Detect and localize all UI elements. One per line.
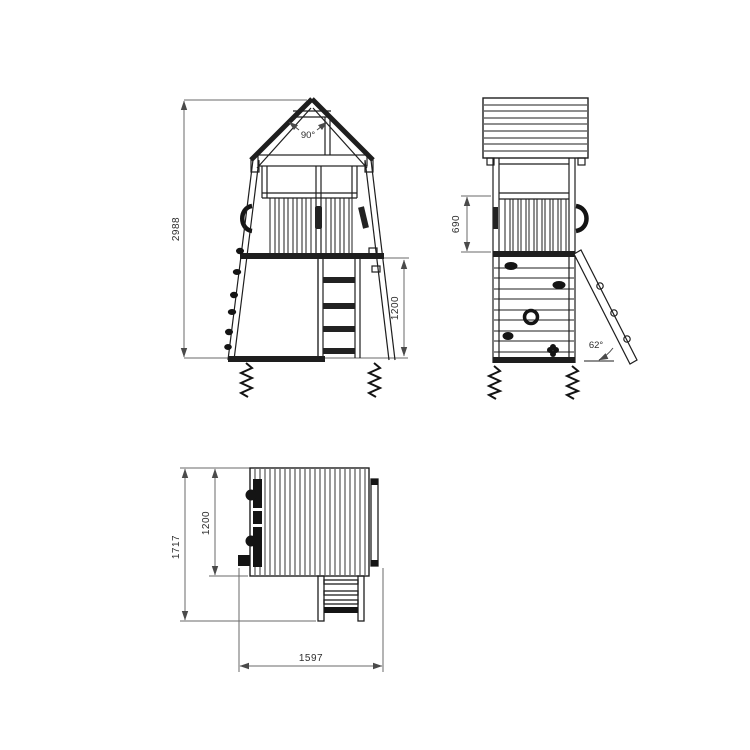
railing-front	[262, 193, 357, 253]
railing-side	[493, 193, 587, 251]
side-view	[461, 98, 637, 399]
ladder-side	[574, 250, 637, 364]
plan-overall-depth-label: 1717	[171, 535, 182, 559]
plan-overall-width-label: 1597	[299, 653, 323, 664]
dimension-labels: 2988 90° 1200 690 62° 1717 1200 1597	[171, 130, 603, 664]
ground-anchors-front	[241, 363, 380, 397]
right-grip	[361, 207, 366, 228]
roof-beam	[251, 155, 373, 172]
front-view	[184, 99, 409, 397]
climbing-holds-front	[224, 248, 244, 350]
platform-floor	[240, 253, 384, 259]
platform-floor-side	[493, 251, 575, 257]
technical-drawing-canvas: 2988 90° 1200 690 62° 1717 1200 1597	[0, 0, 750, 750]
side-dimensions	[461, 196, 491, 252]
tower-posts	[262, 166, 357, 253]
tower-side-frame	[493, 158, 575, 363]
ground-anchors-side	[489, 366, 578, 399]
legs	[228, 160, 395, 360]
side-ladder-angle-label: 62°	[589, 340, 604, 351]
left-grip-side	[493, 207, 498, 229]
plan-tower-depth-label: 1200	[201, 511, 212, 535]
ladder-front	[318, 259, 360, 358]
flower-hold	[547, 344, 559, 357]
drawing-svg: 2988 90° 1200 690 62° 1717 1200 1597	[0, 0, 750, 750]
handles-front	[242, 206, 366, 231]
corner-hold	[238, 555, 250, 566]
lower-wall-front	[228, 259, 325, 362]
base-band	[228, 356, 325, 362]
roof-angle-label: 90°	[301, 130, 316, 141]
center-grip	[315, 206, 322, 229]
roof-plan	[250, 468, 369, 576]
plan-view	[180, 468, 383, 672]
front-overall-height-label: 2988	[171, 217, 182, 241]
railing-plan	[371, 479, 378, 566]
right-c-handle-side	[576, 206, 587, 231]
ladder-plan	[318, 576, 364, 621]
side-railing-height-label: 690	[451, 215, 462, 233]
roof-side	[483, 98, 588, 165]
plan-dimensions	[180, 468, 383, 672]
front-platform-height-label: 1200	[390, 296, 401, 320]
